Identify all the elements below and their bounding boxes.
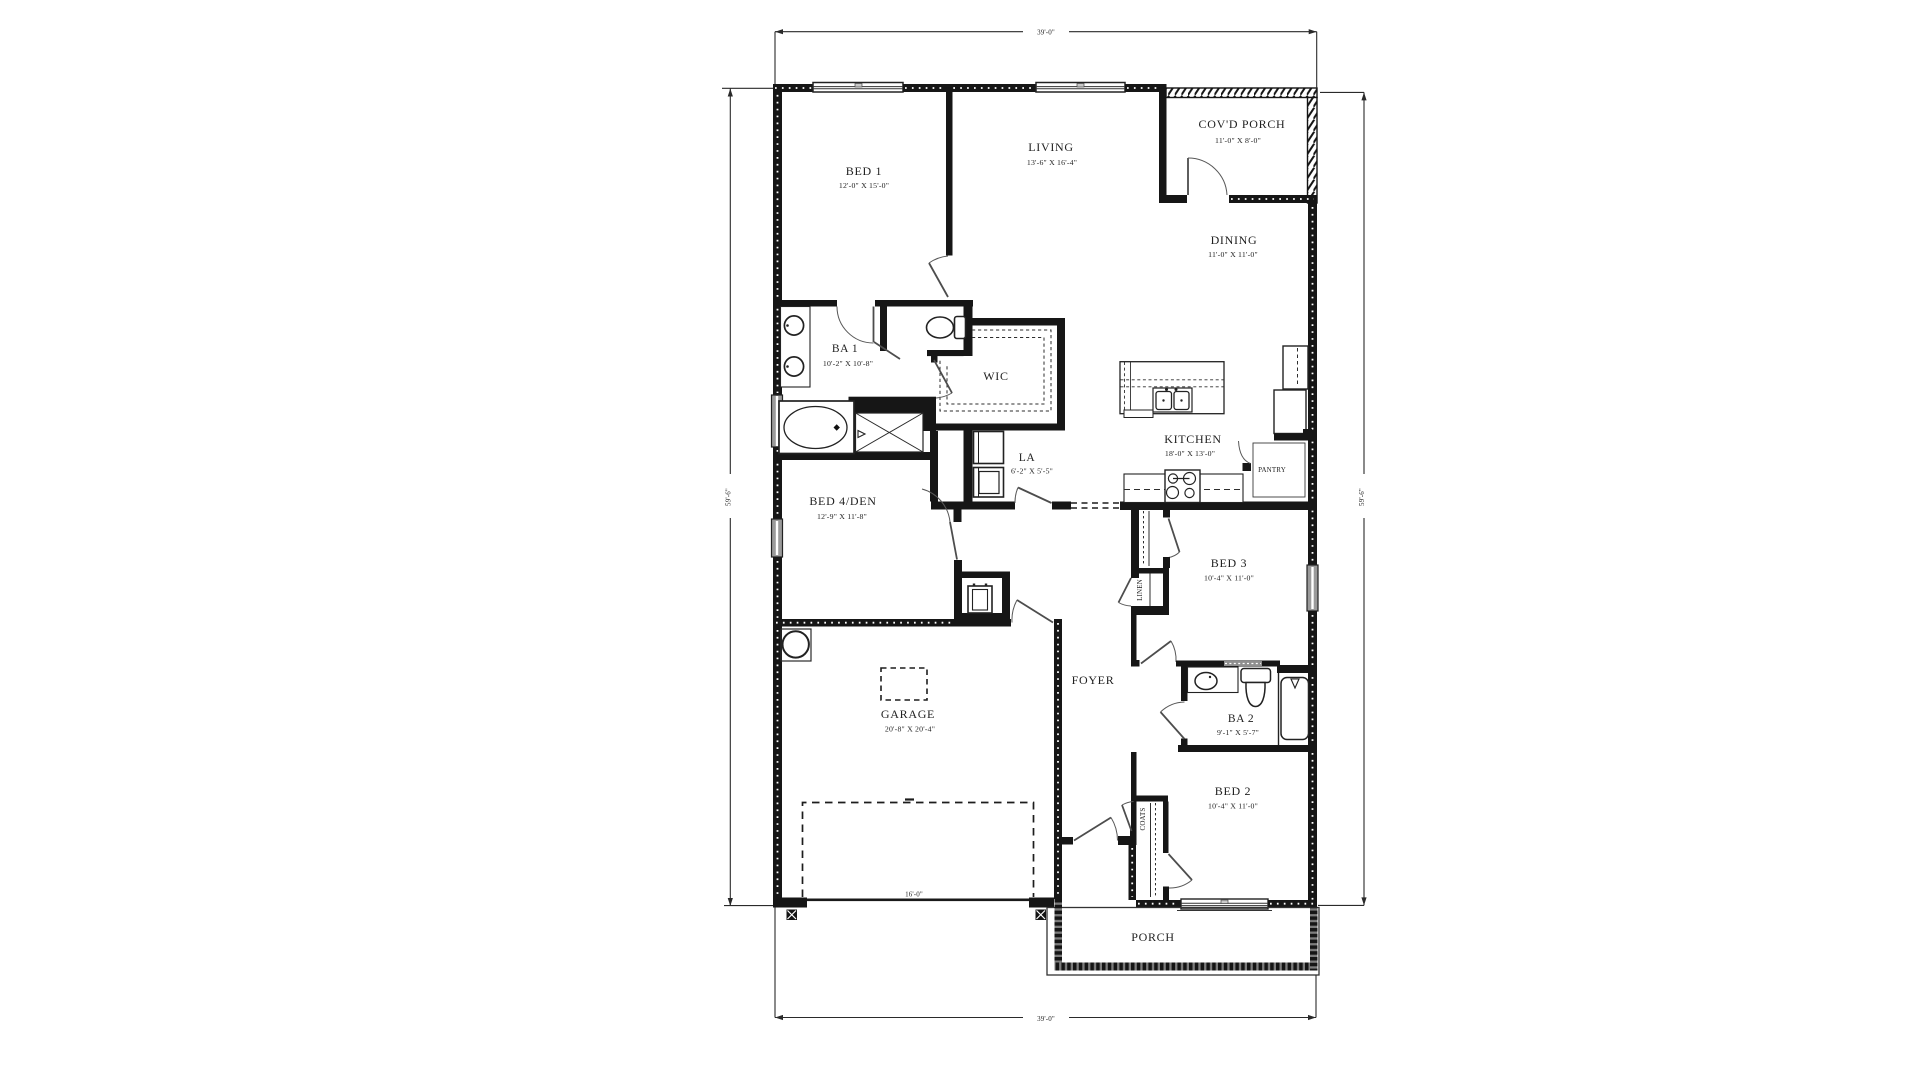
svg-text:12'-0" X 15'-0": 12'-0" X 15'-0" <box>839 181 889 190</box>
svg-text:59'-6": 59'-6" <box>724 488 732 506</box>
svg-text:10'-4" X 11'-0": 10'-4" X 11'-0" <box>1208 802 1258 811</box>
svg-text:BA 1: BA 1 <box>832 343 858 355</box>
svg-text:BED 2: BED 2 <box>1215 784 1252 798</box>
svg-text:39'-0": 39'-0" <box>1037 29 1055 37</box>
svg-text:LIVING: LIVING <box>1028 140 1074 154</box>
svg-text:GARAGE: GARAGE <box>881 707 935 721</box>
svg-text:39'-0": 39'-0" <box>1037 1015 1055 1023</box>
svg-text:16'-0": 16'-0" <box>905 891 923 899</box>
svg-text:18'-0" X 13'-0": 18'-0" X 13'-0" <box>1165 449 1215 458</box>
svg-text:FOYER: FOYER <box>1072 673 1115 687</box>
svg-text:COATS: COATS <box>1139 808 1147 831</box>
svg-text:COV'D PORCH: COV'D PORCH <box>1199 117 1286 131</box>
svg-text:12'-9" X 11'-8": 12'-9" X 11'-8" <box>817 512 867 521</box>
svg-text:KITCHEN: KITCHEN <box>1164 432 1222 446</box>
svg-text:59'-6": 59'-6" <box>1358 488 1366 506</box>
svg-text:13'-6" X 16'-4": 13'-6" X 16'-4" <box>1027 158 1077 167</box>
svg-text:BED 3: BED 3 <box>1211 556 1248 570</box>
svg-text:LA: LA <box>1019 452 1036 464</box>
svg-text:PANTRY: PANTRY <box>1258 466 1286 474</box>
svg-text:PORCH: PORCH <box>1131 930 1175 944</box>
svg-text:10'-4" X 11'-0": 10'-4" X 11'-0" <box>1204 574 1254 583</box>
svg-text:11'-0" X 8'-0": 11'-0" X 8'-0" <box>1215 136 1261 145</box>
svg-text:LINEN: LINEN <box>1136 579 1144 601</box>
svg-text:6'-2" X 5'-5": 6'-2" X 5'-5" <box>1011 467 1053 476</box>
svg-text:11'-0" X 11'-0": 11'-0" X 11'-0" <box>1208 250 1258 259</box>
svg-text:BA 2: BA 2 <box>1228 713 1254 725</box>
svg-text:BED 1: BED 1 <box>846 164 883 178</box>
svg-text:10'-2" X 10'-8": 10'-2" X 10'-8" <box>823 359 873 368</box>
svg-text:DINING: DINING <box>1211 233 1258 247</box>
svg-text:BED 4/DEN: BED 4/DEN <box>809 494 876 508</box>
svg-text:WIC: WIC <box>983 369 1008 383</box>
svg-text:20'-8" X 20'-4": 20'-8" X 20'-4" <box>885 725 935 734</box>
svg-text:9'-1" X 5'-7": 9'-1" X 5'-7" <box>1217 728 1259 737</box>
